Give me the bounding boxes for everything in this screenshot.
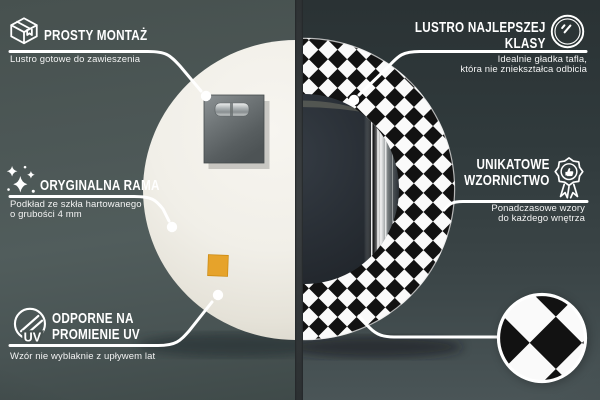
original-frame-title: ORYGINALNA RAMA — [40, 178, 160, 193]
award-badge-icon — [551, 155, 587, 201]
top-quality-title-line2: KLASY — [415, 36, 546, 52]
easy-mount-subtitle: Lustro gotowe do zawieszenia — [10, 55, 140, 65]
uv-subtitle: Wzór nie wyblaknie z upływem lat — [10, 352, 155, 362]
uv-circle-icon: UV — [11, 306, 51, 348]
top-quality-title: LUSTRO NAJLEPSZEJ KLASY — [415, 20, 546, 52]
uv-icon-label: UV — [24, 331, 42, 345]
pattern-detail-swatch — [499, 295, 586, 382]
easy-mount-title: PROSTY MONTAŻ — [44, 28, 147, 43]
original-frame-subtitle: Podkład ze szkła hartowanego o grubości … — [10, 200, 142, 219]
orange-sticker — [208, 255, 229, 277]
unique-design-title: UNIKATOWE WZORNICTWO — [464, 157, 550, 189]
uv-title: ODPORNE NA PROMIENIE UV — [52, 311, 140, 343]
sparkles-icon — [5, 163, 38, 196]
package-box-icon — [7, 14, 41, 48]
product-infographic: PROSTY MONTAŻ Lustro gotowe do zawieszen… — [0, 0, 600, 400]
mirror-shine-icon — [549, 13, 586, 50]
unique-design-subtitle: Ponadczasowe wzory do każdego wnętrza — [491, 204, 585, 223]
top-quality-title-line1: LUSTRO NAJLEPSZEJ — [415, 20, 546, 36]
top-quality-subtitle: Idealnie gładka tafla, która nie znieksz… — [460, 55, 587, 74]
